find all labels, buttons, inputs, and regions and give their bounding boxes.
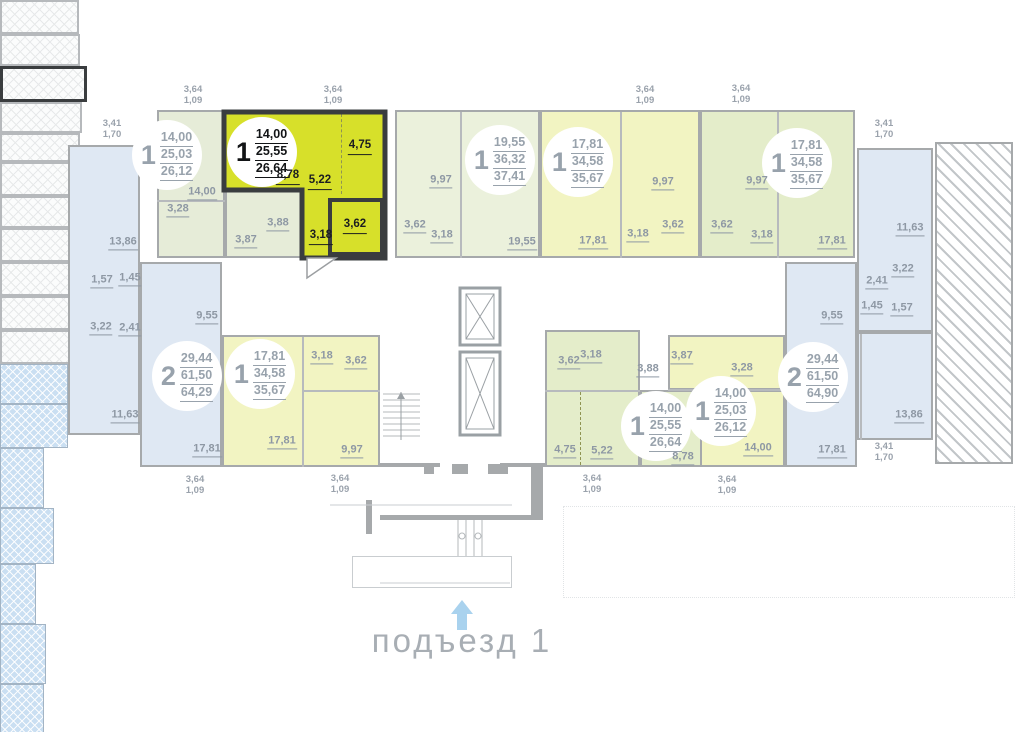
room-area-label: 1,45 [118,271,141,286]
elevator-shaft [460,288,500,345]
room-area-label: 3,87 [234,233,257,248]
balcony-area-label: 3,64 1,09 [331,474,350,496]
apartment-area-value: 14,00 [255,127,288,144]
room-area-label: 5,22 [308,174,332,190]
apartment-area-value: 17,81 [253,349,286,366]
apartment-area-value: 17,81 [571,137,604,154]
room-area-label: 1,57 [90,273,113,288]
apartment-area-value: 37,41 [493,169,526,186]
apartment-areas: 14,0025,0326,12 [714,386,747,437]
balcony-area-label: 3,64 1,09 [184,85,203,107]
apartment-area-value: 29,44 [180,351,213,368]
apartment-rooms-count: 1 [236,139,251,166]
apartment-area-value: 34,58 [571,154,604,171]
room-area-label: 3,18 [626,227,649,242]
room-area-label: 3,22 [89,320,112,335]
room-area-label: 8,78 [276,169,300,185]
room-area-label: 17,81 [192,442,222,457]
room-area-label: 9,97 [340,443,363,458]
balcony-area-label: 3,64 1,09 [636,85,655,107]
balcony-area-label: 3,64 1,09 [186,475,205,497]
room-area-label: 9,97 [745,174,768,189]
apartment-area-value: 35,67 [571,171,604,188]
apartment-areas: 29,4461,5064,29 [180,351,213,402]
apartment-area-value: 36,32 [493,152,526,169]
entrance-steps-icon [330,505,512,583]
room-area-label: 17,81 [578,234,608,249]
room-area-label: 2,41 [118,321,141,336]
apartment-stat-circle[interactable]: 229,4461,5064,90 [778,342,848,412]
room-area-label: 3,18 [750,228,773,243]
apartment-areas: 17,8134,5835,67 [253,349,286,400]
entrance-arrow-icon [451,600,473,614]
apartment-stat-circle[interactable]: 119,5536,3237,41 [465,125,535,195]
floor-plan: 3,41 1,703,64 1,093,64 1,093,64 1,093,64… [0,0,1024,732]
stairs-icon [383,392,420,440]
apartment-rooms-count: 1 [552,149,567,176]
room-area-label: 3,88 [636,362,659,377]
apartment-areas: 17,8134,5835,67 [790,138,823,189]
room-area-label: 11,63 [111,408,140,423]
room-area-label: 13,86 [894,408,924,423]
door-arc-icon [307,258,336,278]
room-area-label: 13,86 [108,235,138,250]
room-area-label: 19,55 [507,235,537,250]
apartment-area-value: 14,00 [649,401,682,418]
balcony-area-label: 3,64 1,09 [583,474,602,496]
balcony-area-label: 3,64 1,09 [718,475,737,497]
apartment-area-value: 14,00 [160,130,193,147]
room-area-label: 17,81 [817,443,847,458]
apartment-area-value: 25,55 [255,144,288,161]
balcony-area-label: 3,64 1,09 [324,85,343,107]
apartment-stat-circle[interactable]: 117,8134,5835,67 [762,128,832,198]
balcony-area-label: 3,41 1,70 [103,119,122,141]
room-area-label: 14,00 [187,185,217,200]
room-area-label: 2,41 [865,274,888,289]
apartment-stat-circle[interactable]: 114,0025,0326,12 [686,376,756,446]
apartment-areas: 17,8134,5835,67 [571,137,604,188]
room-area-label: 8,78 [671,450,694,465]
room-area-label: 5,22 [590,444,613,459]
apartment-rooms-count: 1 [474,147,489,174]
room-area-label: 3,18 [579,348,602,363]
balcony-area-label: 3,41 1,70 [875,442,894,464]
room-area-label: 3,62 [710,218,733,233]
apartment-rooms-count: 2 [161,363,176,390]
room-area-label: 11,63 [896,221,925,236]
room-area-label: 17,81 [817,234,847,249]
apartment-area-value: 26,12 [160,164,193,181]
room-area-label: 3,62 [343,218,367,234]
apartment-areas: 29,4461,5064,90 [806,352,839,403]
room-area-label: 14,00 [743,441,773,456]
room-area-label: 4,75 [553,443,576,458]
room-area-label: 3,88 [266,216,289,231]
apartment-stat-circle[interactable]: 229,4461,5064,29 [152,341,222,411]
apartment-rooms-count: 1 [771,150,786,177]
room-area-label: 17,81 [267,434,297,449]
apartment-areas: 19,5536,3237,41 [493,135,526,186]
apartment-area-value: 25,03 [714,403,747,420]
apartment-area-value: 19,55 [493,135,526,152]
apartment-areas: 14,0025,0326,12 [160,130,193,181]
room-area-label: 1,57 [890,301,913,316]
apartment-area-value: 26,64 [649,435,682,452]
room-area-label: 3,18 [309,229,333,245]
apartment-stat-circle[interactable]: 117,8134,5835,67 [543,127,613,197]
room-area-label: 9,97 [429,173,452,188]
apartment-area-value: 35,67 [790,172,823,189]
apartment-area-value: 34,58 [790,155,823,172]
room-area-label: 9,55 [820,309,843,324]
room-area-label: 9,97 [651,175,674,190]
room-area-label: 9,55 [195,309,218,324]
apartment-area-value: 34,58 [253,366,286,383]
apartment-rooms-count: 1 [695,398,710,425]
elevator-shaft [460,352,500,435]
apartment-area-value: 29,44 [806,352,839,369]
apartment-area-value: 25,55 [649,418,682,435]
balcony-area-label: 3,64 1,09 [732,84,751,106]
apartment-area-value: 61,50 [180,368,213,385]
room-area-label: 1,45 [860,299,883,314]
apartment-area-value: 25,03 [160,147,193,164]
apartment-rooms-count: 1 [141,142,156,169]
room-area-label: 3,62 [344,354,367,369]
room-area-label: 3,62 [557,354,580,369]
apartment-area-value: 35,67 [253,383,286,400]
balcony-area-label: 3,41 1,70 [875,119,894,141]
apartment-area-value: 61,50 [806,369,839,386]
room-area-label: 3,87 [670,349,693,364]
apartment-areas: 14,0025,5526,64 [649,401,682,452]
room-area-label: 3,62 [403,218,426,233]
room-area-label: 3,28 [730,361,753,376]
apartment-area-value: 26,12 [714,420,747,437]
entrance-label: подъезд 1 [372,622,552,660]
apartment-area-value: 17,81 [790,138,823,155]
room-area-label: 3,28 [166,202,189,217]
apartment-rooms-count: 2 [787,364,802,391]
room-area-label: 3,22 [891,262,914,277]
apartment-rooms-count: 1 [234,361,249,388]
apartment-rooms-count: 1 [630,413,645,440]
room-area-label: 3,18 [430,228,453,243]
room-area-label: 3,62 [661,218,684,233]
room-area-label: 4,75 [348,139,372,155]
apartment-area-value: 64,29 [180,385,213,402]
apartment-stat-circle[interactable]: 114,0025,0326,12 [132,120,202,190]
apartment-stat-circle[interactable]: 117,8134,5835,67 [225,339,295,409]
apartment-area-value: 14,00 [714,386,747,403]
room-area-label: 3,18 [310,349,333,364]
apartment-area-value: 64,90 [806,386,839,403]
